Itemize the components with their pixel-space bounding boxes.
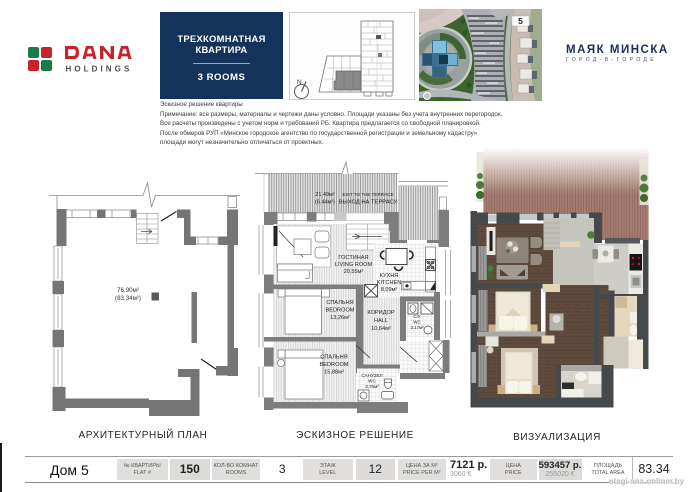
svg-text:САНУЗЕЛ: САНУЗЕЛ bbox=[361, 373, 382, 378]
svg-text:3,17м²: 3,17м² bbox=[410, 325, 424, 330]
svg-text:WC: WC bbox=[368, 379, 376, 384]
svg-text:WC: WC bbox=[413, 320, 420, 325]
svg-text:BEDROOM: BEDROOM bbox=[320, 362, 349, 368]
svg-text:20,55м²: 20,55м² bbox=[344, 269, 364, 275]
svg-text:5: 5 bbox=[518, 16, 523, 26]
svg-text:КОРИДОР: КОРИДОР bbox=[367, 310, 394, 316]
svg-text:15,88м²: 15,88м² bbox=[324, 370, 344, 376]
svg-text:8,09м²: 8,09м² bbox=[381, 287, 398, 293]
svg-text:КУХНЯ: КУХНЯ bbox=[380, 273, 399, 279]
svg-text:10,64м²: 10,64м² bbox=[371, 326, 391, 332]
svg-text:СПАЛЬНЯ: СПАЛЬНЯ bbox=[320, 355, 347, 361]
svg-text:(6.44м²): (6.44м²) bbox=[315, 200, 335, 206]
svg-text:BEDROOM: BEDROOM bbox=[326, 308, 355, 314]
svg-text:13,26м²: 13,26м² bbox=[330, 315, 350, 321]
svg-text:(83.34м²): (83.34м²) bbox=[115, 295, 141, 302]
svg-text:3,76м²: 3,76м² bbox=[365, 384, 379, 389]
svg-text:СПАЛЬНЯ: СПАЛЬНЯ bbox=[326, 300, 353, 306]
svg-text:С/У: С/У bbox=[413, 314, 420, 319]
svg-text:N: N bbox=[297, 79, 302, 86]
svg-text:76.90м²: 76.90м² bbox=[117, 287, 139, 294]
svg-text:ВЫХОД НА ТЕРРАСУ: ВЫХОД НА ТЕРРАСУ bbox=[339, 200, 398, 206]
svg-text:ГОСТИНАЯ: ГОСТИНАЯ bbox=[338, 255, 368, 261]
svg-text:21.49м²: 21.49м² bbox=[315, 192, 335, 198]
svg-text:LIVING ROOM: LIVING ROOM bbox=[335, 262, 373, 268]
svg-text:KITCHEN: KITCHEN bbox=[377, 280, 402, 286]
svg-text:HOLDINGS: HOLDINGS bbox=[66, 65, 132, 74]
svg-text:EXIT TO THE TERRACE: EXIT TO THE TERRACE bbox=[342, 192, 393, 197]
svg-text:HALL: HALL bbox=[374, 318, 388, 324]
